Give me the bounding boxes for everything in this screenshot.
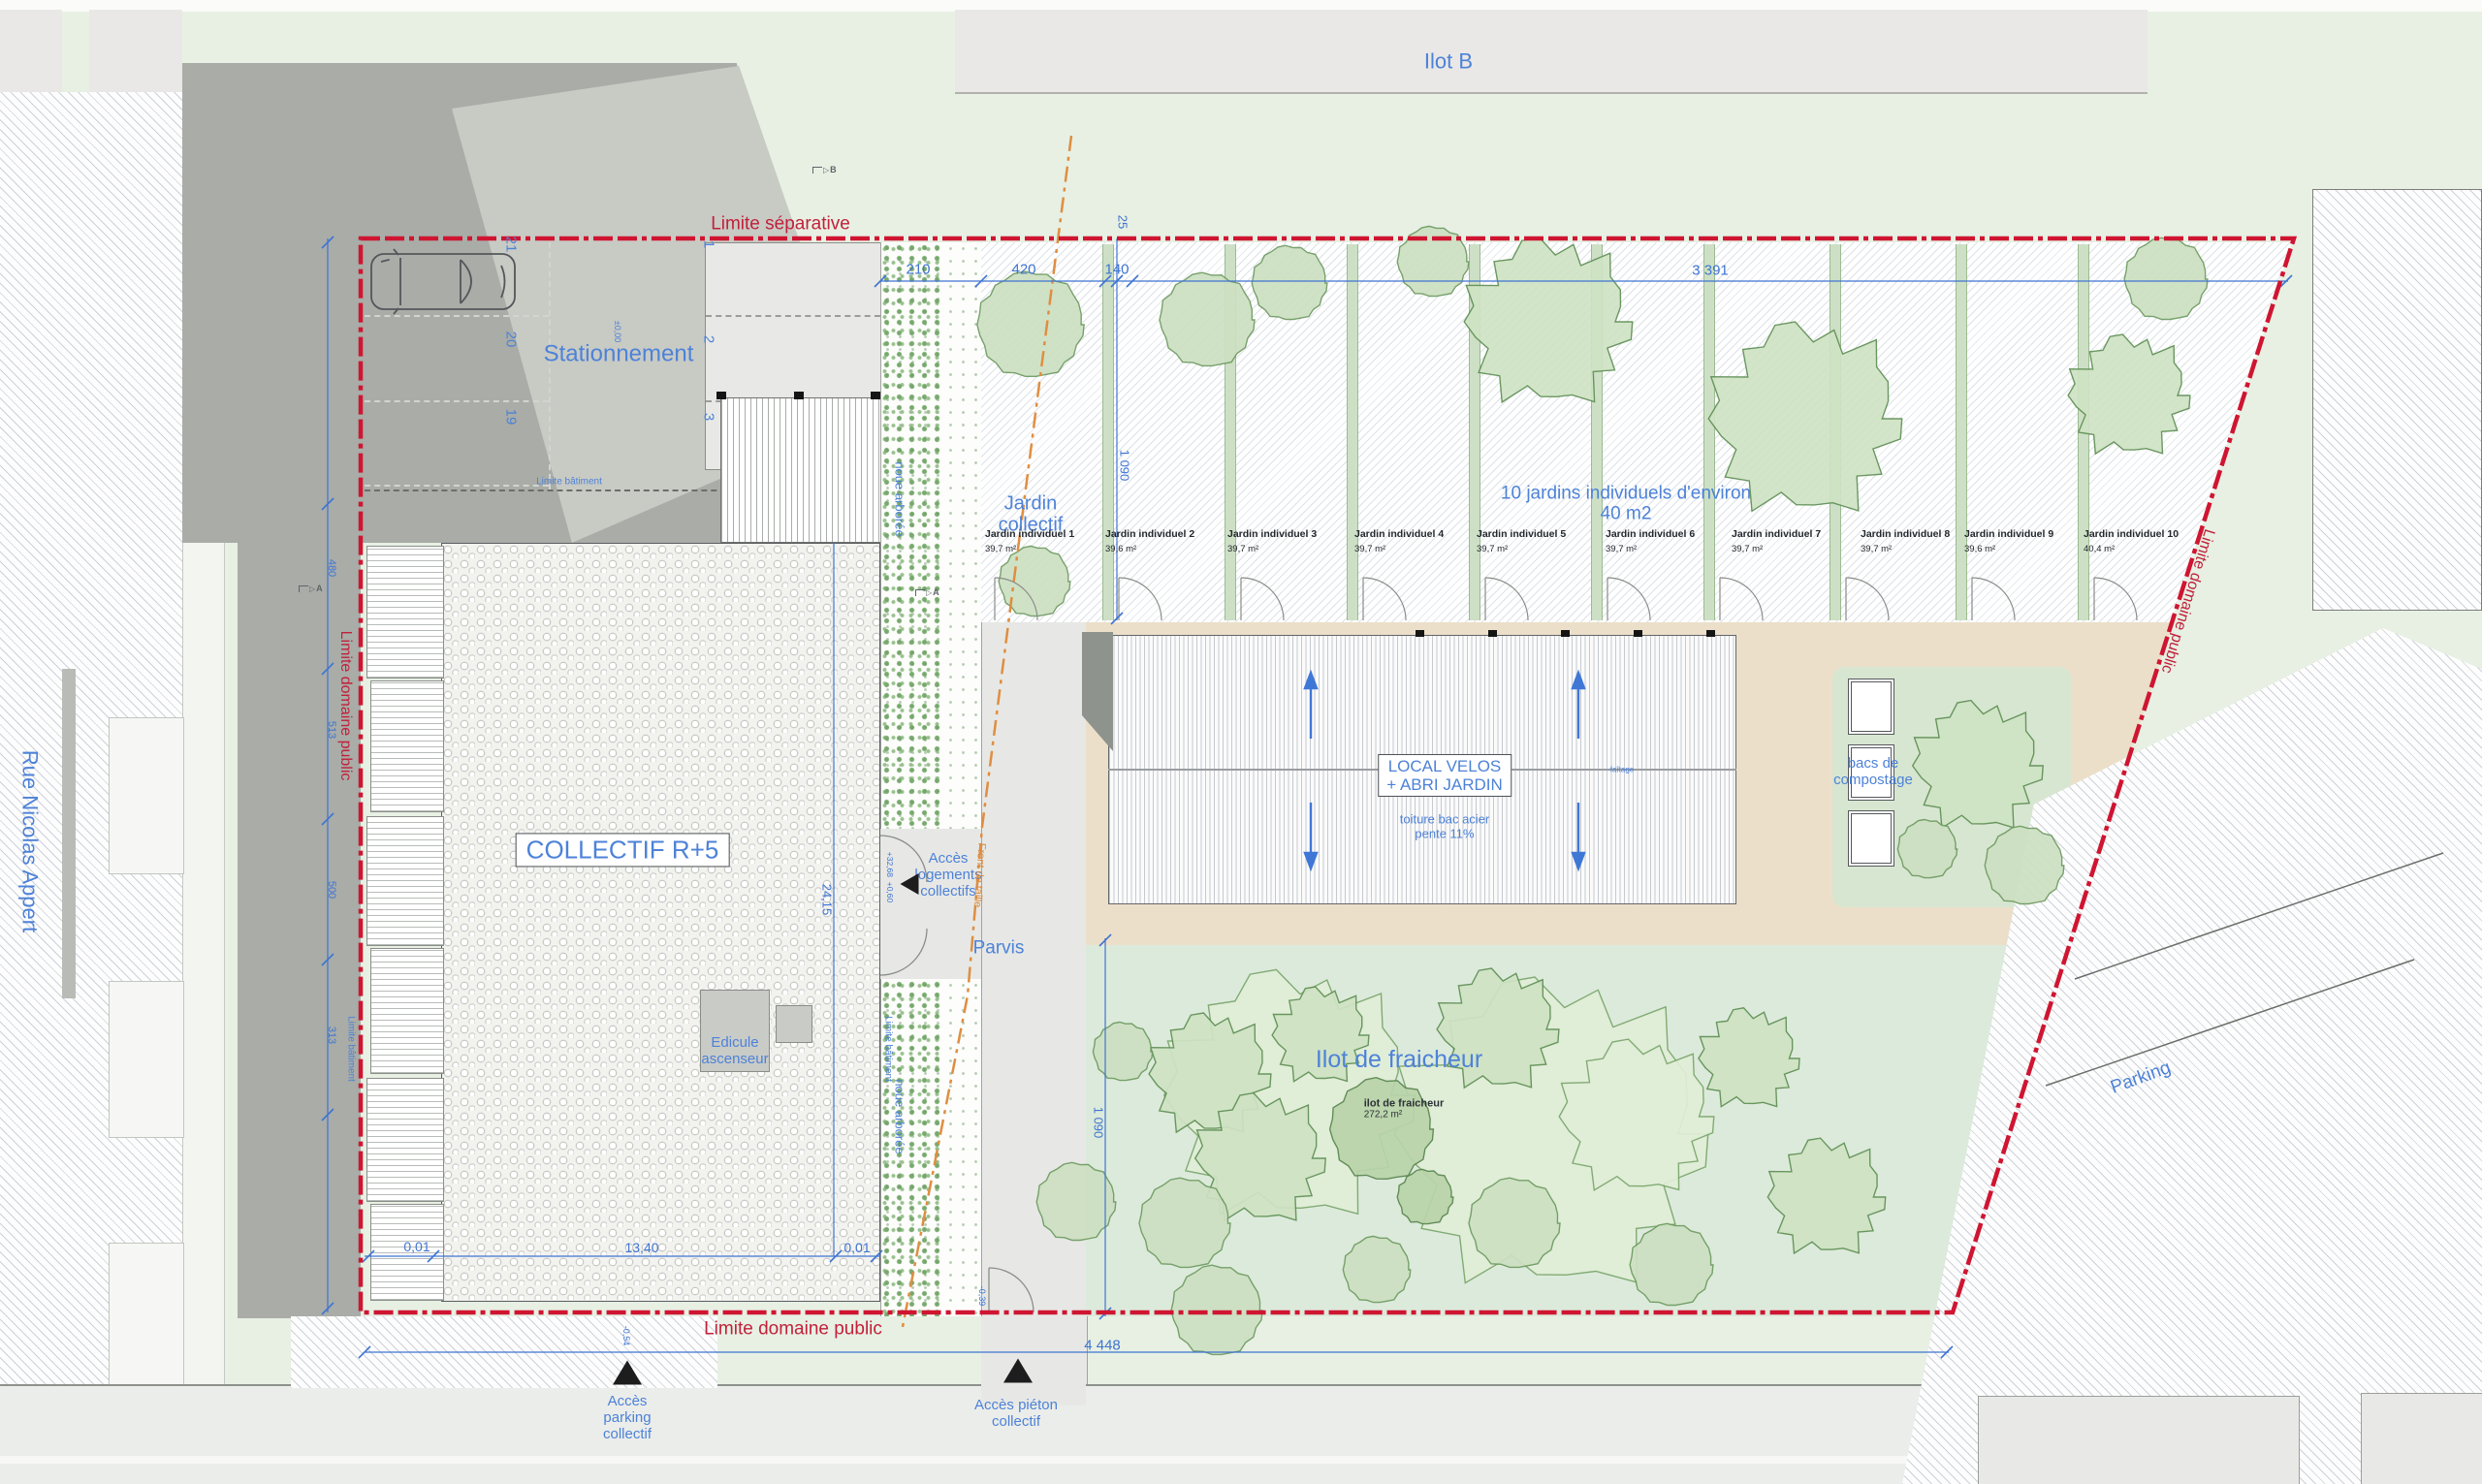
plan-linework: [0, 0, 2482, 1484]
dim-480: 480: [326, 559, 337, 577]
limite-batiment-label-3: Limite bâtiment: [882, 1016, 893, 1082]
plot-area: 40,4 m²: [2084, 543, 2179, 556]
stall-number: 2: [701, 335, 717, 343]
ilot-b-label: Ilot B: [1424, 50, 1473, 75]
ilot-fraicheur-area: ilot de fraicheur 272,2 m²: [1364, 1097, 1445, 1121]
tree-canopy: [1343, 1236, 1410, 1302]
niveau-entree-2: +0,60: [885, 882, 895, 903]
tree-canopy: [1171, 1265, 1262, 1354]
garden-plot-label: Jardin individuel 739,7 m²: [1732, 527, 1821, 556]
ilot-fraicheur-l2: 272,2 m²: [1364, 1110, 1445, 1121]
garden-gate-arc: [1846, 578, 1889, 620]
toiture-l2: pente 11%: [1400, 827, 1490, 841]
plot-name: Jardin individuel 6: [1606, 527, 1695, 543]
dim-001-a: 0,01: [403, 1240, 430, 1255]
jardins-note-l1: 10 jardins individuels d'environ: [1501, 484, 1751, 504]
plot-area: 39,7 m²: [1477, 543, 1566, 556]
faitage-label: faîtage: [1610, 767, 1634, 775]
plot-area: 39,6 m²: [1105, 543, 1194, 556]
dim-1090-fraicheur: 1 090: [1091, 1107, 1105, 1139]
acces-pieton-label: Accès piéton collectif: [974, 1398, 1058, 1431]
plot-name: Jardin individuel 9: [1964, 527, 2053, 543]
stall-number: 19: [503, 409, 520, 426]
stationnement-niveau: ±0,00: [613, 321, 622, 342]
plot-area: 39,7 m²: [985, 543, 1074, 556]
stall-number: 20: [503, 332, 520, 348]
garden-gate-arc: [1241, 578, 1284, 620]
section-line: [915, 589, 925, 596]
velos-shadow-corner: [1082, 632, 1113, 751]
tree-canopy: [1767, 1138, 1885, 1253]
limite-dp-west-label: Limite domaine public: [336, 631, 354, 781]
garden-gate-arc: [1972, 578, 2015, 620]
limite-batiment-label-1: Limite bâtiment: [536, 476, 602, 487]
garden-plot-label: Jardin individuel 1040,4 m²: [2084, 527, 2179, 556]
section-line: [299, 585, 308, 592]
dim-210: 210: [906, 263, 930, 279]
site-plan: Ilot B Rue Nicolas Appert Parking Limite…: [0, 0, 2482, 1484]
tree-canopy: [2124, 237, 2208, 319]
dim-1340: 13,40: [624, 1241, 658, 1256]
parvis-label: Parvis: [973, 937, 1025, 958]
acces-parking-l2: parking: [603, 1410, 652, 1427]
bacs-l1: bacs de: [1833, 756, 1913, 773]
noue-label-north: noue arborée: [892, 461, 907, 536]
limite-dp-south-label: Limite domaine public: [704, 1318, 882, 1339]
garden-gate-arc: [1607, 578, 1650, 620]
stall-number: 1: [701, 240, 717, 248]
garden-plot-label: Jardin individuel 439,7 m²: [1354, 527, 1444, 556]
dim-4448: 4 448: [1084, 1339, 1121, 1355]
jardins-note-label: 10 jardins individuels d'environ 40 m2: [1501, 484, 1751, 525]
plot-name: Jardin individuel 8: [1861, 527, 1950, 543]
acces-pieton-l2: collectif: [974, 1414, 1058, 1431]
tree-canopy: [1699, 1008, 1799, 1107]
local-velos-l1: LOCAL VELOS: [1386, 757, 1503, 775]
ilot-fraicheur-l1: ilot de fraicheur: [1364, 1097, 1445, 1109]
section-letter-a: A: [316, 584, 323, 593]
dim-500: 500: [326, 881, 337, 899]
section-marker-b: ▷ B: [812, 165, 837, 174]
tree-canopy: [1897, 820, 1957, 878]
east-parking-lines: [2046, 853, 2443, 1086]
section-letter-b: B: [830, 165, 837, 174]
section-marker-a1: ▷ A: [299, 584, 323, 593]
tree-canopy: [1160, 272, 1255, 365]
garden-gate-arc: [1363, 578, 1406, 620]
stall-number: 3: [701, 413, 717, 421]
stall-number: 21: [503, 237, 520, 253]
garden-plot-label: Jardin individuel 939,6 m²: [1964, 527, 2053, 556]
garden-plot-label: Jardin individuel 639,7 m²: [1606, 527, 1695, 556]
niveau-pieton: -0,39: [977, 1286, 987, 1307]
garden-plot-label: Jardin individuel 839,7 m²: [1861, 527, 1950, 556]
tree-canopy: [1913, 701, 2044, 829]
bacs-compostage-label: bacs de compostage: [1833, 756, 1913, 789]
toiture-l1: toiture bac acier: [1400, 812, 1490, 827]
tree-canopy: [1139, 1178, 1230, 1267]
edicule-l2: ascenseur: [701, 1052, 768, 1068]
section-arrow-icon: ▷: [309, 584, 315, 593]
plot-name: Jardin individuel 3: [1227, 527, 1317, 543]
acces-parking-label: Accès parking collectif: [603, 1394, 652, 1442]
niveau-sortie: -0,54: [621, 1326, 631, 1346]
dim-1090-jardins: 1 090: [1117, 450, 1131, 482]
acces-pieton-arrow: [1003, 1359, 1033, 1383]
bacs-l2: compostage: [1833, 773, 1913, 789]
section-line: [812, 167, 822, 174]
acces-pieton-l1: Accès piéton: [974, 1398, 1058, 1414]
acces-parking-l1: Accès: [603, 1394, 652, 1410]
ilot-fraicheur-title: Ilot de fraicheur: [1316, 1046, 1482, 1073]
dim-2415: 24,15: [819, 884, 834, 916]
section-arrow-icon: ▷: [823, 166, 829, 174]
plot-name: Jardin individuel 7: [1732, 527, 1821, 543]
dim-001-b: 0,01: [843, 1241, 870, 1256]
toiture-label: toiture bac acier pente 11%: [1400, 812, 1490, 840]
acces-logements-arrow: [901, 873, 919, 895]
garden-plot-label: Jardin individuel 539,7 m²: [1477, 527, 1566, 556]
garden-plot-label: Jardin individuel 239,6 m²: [1105, 527, 1194, 556]
local-velos-l2: + ABRI JARDIN: [1386, 775, 1503, 794]
plot-name: Jardin individuel 5: [1477, 527, 1566, 543]
tree-canopy: [1252, 245, 1327, 319]
car-icon: [371, 249, 515, 314]
tree-canopy: [1630, 1223, 1713, 1305]
limite-batiment-label-2: Limite bâtiment: [345, 1016, 356, 1082]
jardins-note-l2: 40 m2: [1501, 504, 1751, 524]
rue-label: Rue Nicolas Appert: [17, 750, 42, 932]
tree-canopy: [1985, 826, 2064, 903]
dim-3391: 3 391: [1692, 264, 1729, 280]
tree-canopy: [2068, 334, 2190, 454]
acces-logements-l2: logements: [914, 868, 981, 884]
plot-area: 39,7 m²: [1732, 543, 1821, 556]
door-arcs: [880, 836, 1034, 1312]
plot-area: 39,7 m²: [1861, 543, 1950, 556]
garden-plot-label: Jardin individuel 339,7 m²: [1227, 527, 1317, 556]
local-velos-label: LOCAL VELOS + ABRI JARDIN: [1378, 754, 1511, 797]
niveau-entree-1: +32,68: [885, 852, 895, 877]
plot-area: 39,7 m²: [1354, 543, 1444, 556]
plot-name: Jardin individuel 1: [985, 527, 1074, 543]
plot-name: Jardin individuel 2: [1105, 527, 1194, 543]
tree-canopy: [977, 271, 1084, 376]
plot-name: Jardin individuel 10: [2084, 527, 2179, 543]
edicule-label: Edicule ascenseur: [701, 1035, 768, 1068]
section-arrow-icon: ▷: [926, 588, 932, 597]
garden-gate-arc: [1720, 578, 1763, 620]
collectif-label: COLLECTIF R+5: [516, 833, 730, 867]
tree-canopy: [1093, 1023, 1152, 1081]
tree-canopy: [1397, 1169, 1453, 1223]
jardin-collectif-l1: Jardin: [999, 493, 1064, 515]
stationnement-label: Stationnement: [544, 342, 694, 368]
dim-513: 513: [326, 721, 337, 739]
tree-canopy: [1036, 1162, 1116, 1240]
section-marker-a2: ▷ A: [915, 587, 939, 597]
section-letter-a: A: [933, 587, 939, 597]
dim-140: 140: [1104, 263, 1129, 279]
limite-separative-label: Limite séparative: [711, 213, 850, 234]
niveaux-entree: +32,68 +0,60: [884, 852, 894, 903]
tree-canopy: [1464, 237, 1633, 402]
dim-25: 25: [1115, 215, 1130, 229]
acces-parking-arrow: [613, 1361, 642, 1385]
edicule-l1: Edicule: [701, 1035, 768, 1052]
acces-logements-l1: Accès: [914, 851, 981, 868]
garden-gate-arc: [1119, 578, 1161, 620]
plot-area: 39,7 m²: [1606, 543, 1695, 556]
garden-gate-arc: [2094, 578, 2137, 620]
garden-gate-arc: [1485, 578, 1528, 620]
acces-parking-l3: collectif: [603, 1426, 652, 1442]
noue-label-south: noue arborée: [892, 1079, 907, 1153]
dim-313: 313: [326, 1026, 337, 1044]
plot-area: 39,7 m²: [1227, 543, 1317, 556]
garden-plot-label: Jardin individuel 139,7 m²: [985, 527, 1074, 556]
dim-420: 420: [1011, 263, 1035, 279]
plot-area: 39,6 m²: [1964, 543, 2053, 556]
plot-name: Jardin individuel 4: [1354, 527, 1444, 543]
